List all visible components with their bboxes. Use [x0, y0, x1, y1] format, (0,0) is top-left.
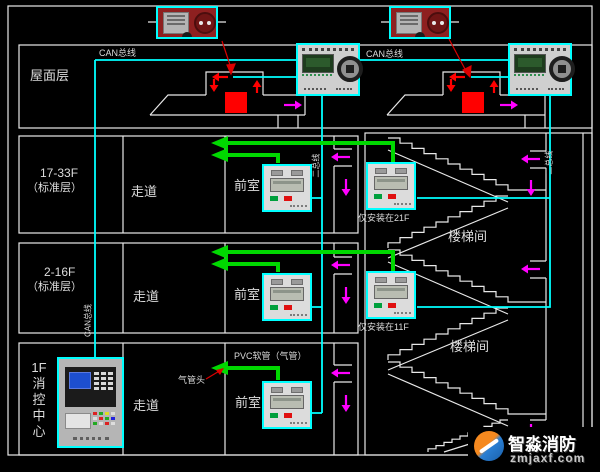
- flow-arrow-head: [447, 85, 456, 92]
- roof-floor-label: 屋面层: [30, 69, 69, 84]
- flow-arrow-head: [490, 80, 499, 87]
- sensor-display: [270, 178, 304, 192]
- flow-arrow-head: [511, 101, 518, 110]
- only-11f-note: 仅安装在11F: [358, 322, 409, 332]
- stairwell-label-lower: 楼梯间: [450, 340, 489, 355]
- corridor-label-1f: 走道: [133, 399, 159, 414]
- sensor-display: [270, 395, 304, 409]
- corridor-label-17-33f: 走道: [131, 185, 157, 200]
- fire-damper-left: [225, 92, 247, 113]
- watermark-logo-icon: [474, 431, 504, 461]
- panel-brand-mark: [73, 437, 109, 440]
- damper-actuator-left: [156, 6, 218, 39]
- fire-control-center-label: 1F 消 控 中 心: [22, 360, 56, 440]
- panel-screen: [69, 372, 91, 389]
- panel-keypad: [65, 413, 91, 429]
- pvc-tube-note: PVC软管（气管）: [234, 351, 307, 361]
- pressurization-system-diagram: 屋面层 17-33F （标准层） 2-16F （标准层） 1F 消 控 中 心 …: [0, 0, 600, 472]
- controller-lcd: [514, 54, 546, 73]
- flow-arrow-head: [521, 265, 528, 274]
- fire-damper-right: [462, 92, 484, 113]
- actuator-knob: [194, 12, 216, 34]
- damper-actuator-right: [389, 6, 451, 39]
- pressure-sensor-stair-11f: [366, 271, 416, 319]
- watermark-domain: zmjaxf.com: [510, 451, 585, 465]
- can-bus-label-left: CAN总线: [99, 48, 136, 58]
- stairwell-label-upper: 楼梯间: [448, 230, 487, 245]
- pressure-sensor-stair-21f: [366, 162, 416, 210]
- two-bus-label-right: 二总线: [544, 143, 553, 183]
- floor-2-16-label: 2-16F: [44, 266, 75, 280]
- corridor-label-2-16f: 走道: [133, 290, 159, 305]
- flow-arrow-head: [342, 297, 351, 304]
- floor-17-33-label: 17-33F: [40, 167, 78, 181]
- flow-arrow-head: [342, 405, 351, 412]
- can-bus-label-vertical: CAN总线: [83, 299, 92, 343]
- fire-control-panel: [57, 357, 124, 448]
- anteroom-label-1f: 前室: [235, 396, 261, 411]
- anteroom-label-17-33f: 前室: [234, 179, 260, 194]
- pressure-sensor-anteroom-2-16f: [262, 273, 312, 321]
- tube-head-leader: [204, 366, 226, 382]
- flow-arrow-head: [210, 85, 219, 92]
- anteroom-label-2-16f: 前室: [234, 288, 260, 303]
- panel-indicator-grid: [93, 412, 115, 425]
- flow-arrow-head: [331, 369, 338, 378]
- floor-2-16-sublabel: （标准层）: [27, 281, 82, 294]
- panel-buttons: [94, 372, 113, 390]
- flow-arrow-head: [521, 155, 528, 164]
- sensor-display: [374, 176, 408, 190]
- flow-arrow-head: [331, 261, 338, 270]
- only-21f-note: 仅安装在21F: [358, 213, 410, 223]
- pressure-controller-left: [296, 43, 360, 96]
- pressure-sensor-anteroom-17-33f: [262, 164, 312, 212]
- pressure-sensor-anteroom-1f: [262, 381, 312, 429]
- actuator-knob: [427, 12, 449, 34]
- controller-keypad: [549, 56, 575, 82]
- controller-lcd: [302, 54, 334, 73]
- pressure-controller-right: [508, 43, 572, 96]
- flow-arrow-head: [295, 101, 302, 110]
- tube-head-note: 气管头: [178, 375, 205, 385]
- watermark: 智淼消防 zmjaxf.com: [468, 427, 600, 472]
- sensor-display: [270, 287, 304, 301]
- can-bus-label-mid: CAN总线: [366, 49, 403, 59]
- floor-17-33-sublabel: （标准层）: [27, 182, 82, 195]
- sensor-display: [374, 285, 408, 299]
- flow-arrow-head: [527, 189, 536, 196]
- flow-arrow-head: [331, 153, 338, 162]
- controller-keypad: [337, 56, 363, 82]
- flow-arrow-head: [342, 189, 351, 196]
- flow-arrow-head: [253, 80, 262, 87]
- room-dividers: [123, 133, 583, 455]
- two-bus-label-left: 二总线: [311, 146, 320, 186]
